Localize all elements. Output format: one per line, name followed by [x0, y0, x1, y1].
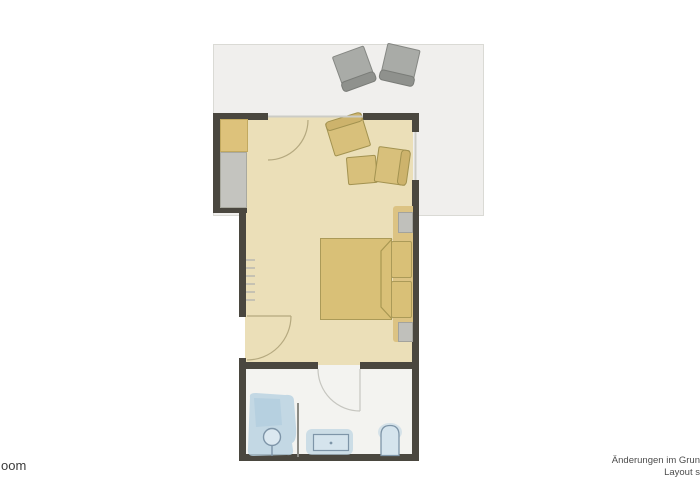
wall-bedroom-bath-left — [239, 362, 318, 369]
wardrobe — [220, 119, 248, 152]
left-cropped-label: oom — [1, 458, 26, 473]
double-bed — [320, 238, 392, 320]
wall-left-bottom — [239, 358, 246, 461]
wall-right-upper — [412, 113, 419, 132]
pillow-left — [391, 241, 412, 278]
wall-bedroom-bath-right — [360, 362, 419, 369]
wall-right-lower — [412, 180, 419, 461]
nightstand-bottom — [398, 322, 413, 342]
footer-note-line2: Layout s — [612, 467, 700, 479]
wall-left-mid — [239, 205, 246, 317]
armchair-2 — [374, 146, 411, 186]
wall-left-upper — [213, 113, 220, 213]
dresser — [220, 152, 247, 208]
terrace-chair-2 — [379, 43, 420, 87]
wall-top-right — [363, 113, 419, 120]
footer-note: Änderungen im Grun Layout s — [612, 455, 700, 478]
footer-note-line1: Änderungen im Grun — [612, 455, 700, 467]
floorplan-canvas: oom Änderungen im Grun Layout s — [0, 0, 700, 500]
pillow-right — [391, 281, 412, 318]
bathroom-floor — [245, 365, 413, 455]
nightstand-top — [398, 212, 413, 233]
wall-bathroom-bottom — [239, 454, 419, 461]
